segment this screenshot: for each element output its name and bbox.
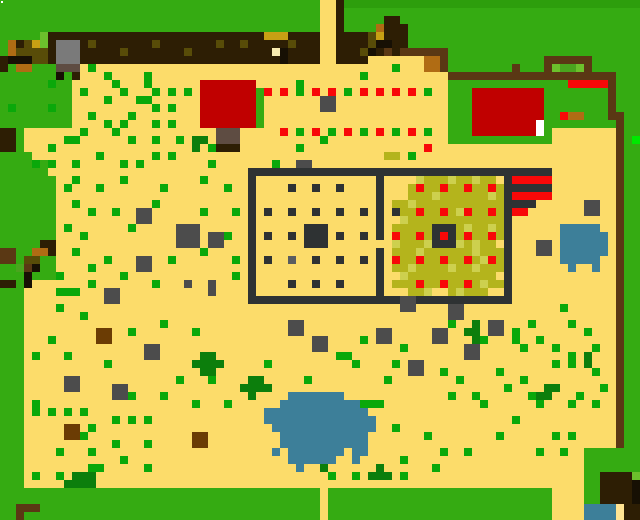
- ne-wood-pile[interactable]: [344, 16, 408, 64]
- red-building-east[interactable]: [472, 88, 544, 136]
- sw-corner-dock[interactable]: [16, 504, 40, 520]
- south-pond[interactable]: [264, 392, 376, 472]
- dirt-road-strip[interactable]: [48, 32, 320, 64]
- se-corner-structure[interactable]: [600, 472, 640, 520]
- red-building-west[interactable]: [200, 80, 256, 128]
- left-compound[interactable]: [248, 168, 384, 304]
- red-striped-banner[interactable]: [512, 168, 552, 216]
- animal-pen[interactable]: [544, 56, 592, 80]
- right-compound[interactable]: [376, 168, 512, 304]
- north-path[interactable]: [320, 0, 336, 64]
- gray-hut[interactable]: [56, 40, 80, 72]
- south-path[interactable]: [320, 488, 328, 520]
- east-pond[interactable]: [560, 224, 608, 272]
- game-viewport: [0, 0, 640, 520]
